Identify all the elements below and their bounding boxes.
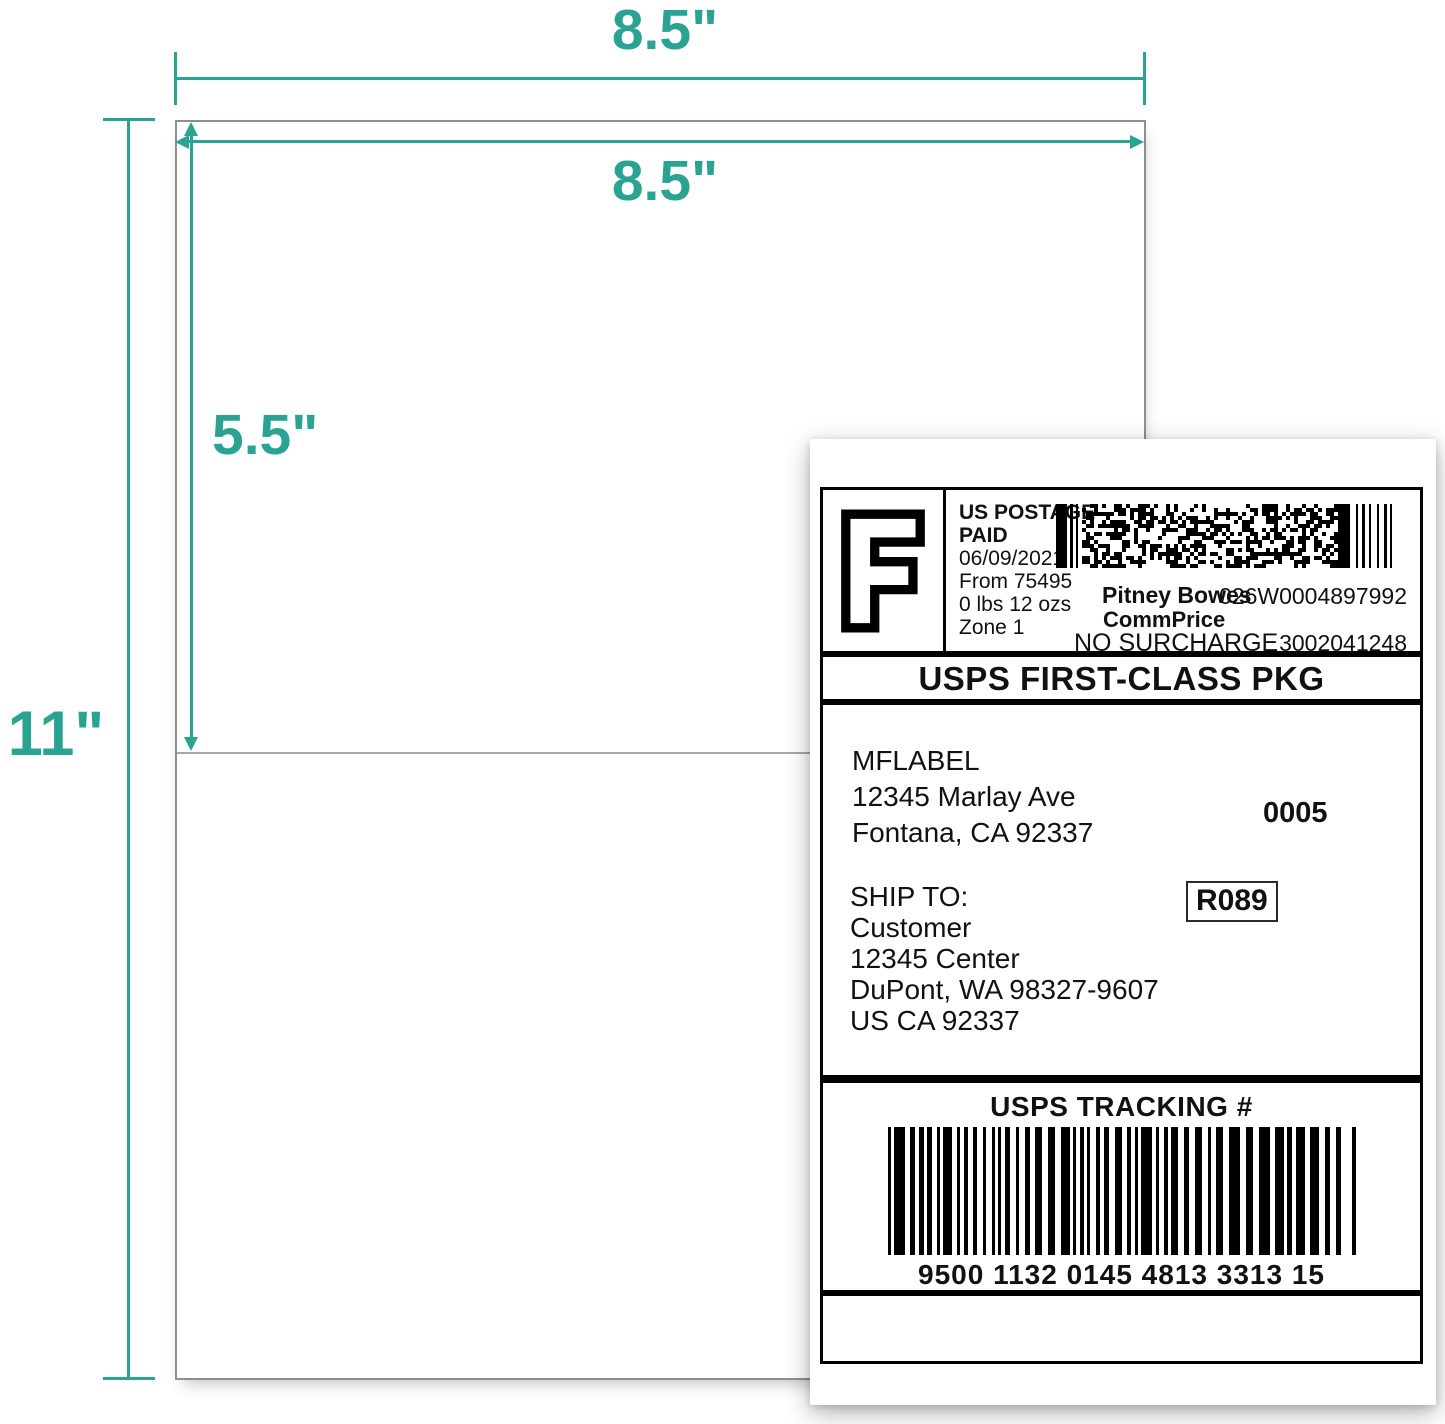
postage-origin: From 75495 [959,570,1099,593]
dim-inner-width-arrow-left [175,135,189,149]
postage-header-row: US POSTAGE PAID 06/09/2021 From 75495 0 … [823,490,1420,657]
dim-top-left-tick [174,52,177,105]
tracking-number: 9500 1132 0145 4813 3313 15 [823,1259,1420,1291]
tracking-section: USPS TRACKING # 9500 1132 0145 4813 3313… [823,1083,1420,1296]
dim-left-line [127,119,130,1380]
ship-to-address: SHIP TO: Customer 12345 Center DuPont, W… [850,881,1159,1036]
dim-inner-height-arrow-up [184,122,198,136]
return-address-line: 12345 Marlay Ave [852,779,1093,815]
return-address: MFLABEL 12345 Marlay Ave Fontana, CA 923… [852,743,1093,851]
dim-left-bottom-tick [103,1377,155,1380]
dim-top-right-tick [1143,52,1146,105]
label-empty-row [823,1296,1420,1361]
tracking-barcode [888,1127,1356,1255]
ship-to-line: 12345 Center [850,943,1159,974]
dim-top-line [176,77,1144,80]
ship-to-line: DuPont, WA 98327-9607 [850,974,1159,1005]
service-class-banner: USPS FIRST-CLASS PKG [823,657,1420,705]
dim-label-width-label: 8.5" [570,153,760,210]
dim-inner-height-arrow-down [184,737,198,751]
shipping-label: US POSTAGE PAID 06/09/2021 From 75495 0 … [820,487,1423,1364]
ship-to-heading: SHIP TO: [850,881,1159,912]
dim-inner-width-line [188,140,1134,143]
postage-meter-id: 026W0004897992 [1219,583,1407,610]
dim-inner-height-line [190,133,193,741]
ship-to-line: Customer [850,912,1159,943]
tracking-heading: USPS TRACKING # [823,1091,1420,1123]
postage-f-logo-icon [839,509,927,633]
return-address-line: MFLABEL [852,743,1093,779]
postage-f-cell [823,490,946,651]
dim-inner-width-arrow-right [1130,135,1144,149]
return-address-line: Fontana, CA 92337 [852,815,1093,851]
route-code-box: R089 [1186,881,1278,922]
postage-surcharge: NO SURCHARGE [1074,629,1278,658]
dim-label-height-label: 5.5" [212,407,362,464]
dim-left-top-tick [103,118,155,121]
postage-header-right: US POSTAGE PAID 06/09/2021 From 75495 0 … [946,490,1420,651]
dim-sheet-width-label: 8.5" [570,2,760,59]
ship-to-line: US CA 92337 [850,1005,1159,1036]
product-dimension-diagram: 8.5" 11" 8.5" 5.5" US POSTAGE PAID [0,0,1445,1424]
batch-number: 0005 [1263,797,1328,830]
postage-account-id: 3002041248 [1279,630,1407,657]
dim-sheet-height-label: 11" [0,703,112,766]
address-section: MFLABEL 12345 Marlay Ave Fontana, CA 923… [823,705,1420,1083]
postage-barcode [1056,504,1393,568]
postage-weight: 0 lbs 12 ozs [959,593,1099,616]
shipping-label-card: US POSTAGE PAID 06/09/2021 From 75495 0 … [810,439,1436,1405]
